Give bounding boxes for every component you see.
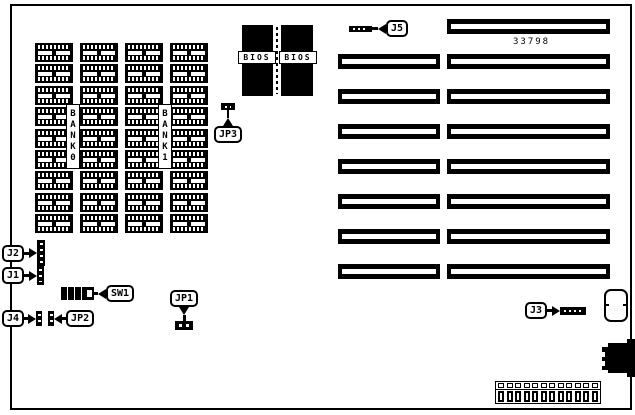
memory-socket xyxy=(170,43,208,62)
callout-jp1: JP1 xyxy=(170,290,198,330)
power-pin xyxy=(541,383,547,388)
memory-socket xyxy=(80,193,118,212)
memory-socket xyxy=(80,107,118,126)
memory-socket xyxy=(35,193,73,212)
callout-j3: J3 xyxy=(525,302,586,319)
power-pin xyxy=(515,391,521,402)
jp1-jumper xyxy=(175,321,193,330)
power-pin xyxy=(575,391,581,402)
j3-label: J3 xyxy=(525,302,547,319)
callout-jp3: JP3 xyxy=(214,103,242,143)
part-number: 33798 xyxy=(513,37,550,47)
pointer-right-icon xyxy=(28,314,36,324)
power-pin xyxy=(507,383,513,388)
pointer-right-icon xyxy=(552,306,560,316)
power-pin xyxy=(549,383,555,388)
expansion-slot xyxy=(338,264,440,279)
sw1-label: SW1 xyxy=(106,285,134,302)
bank0-label: BANK0 xyxy=(66,104,80,169)
memory-socket xyxy=(125,171,163,190)
memory-socket xyxy=(170,64,208,83)
power-pin xyxy=(498,383,504,388)
motherboard-diagram: BANK0 BANK1 BIOS BIOS 33798 J5 JP3 J2 J1 xyxy=(0,0,635,415)
jp2-label: JP2 xyxy=(66,310,94,327)
memory-socket xyxy=(80,64,118,83)
callout-j5: J5 xyxy=(349,20,408,37)
power-pin xyxy=(498,391,504,402)
jp1-label: JP1 xyxy=(170,290,198,307)
bios-chip-divider xyxy=(276,27,278,94)
memory-socket xyxy=(35,214,73,233)
memory-socket xyxy=(35,86,73,105)
power-pin xyxy=(583,391,589,402)
callout-j4-jp2: J4 JP2 xyxy=(2,310,94,327)
expansion-slot xyxy=(447,264,610,279)
memory-socket xyxy=(170,86,208,105)
keyboard-connector-body xyxy=(608,343,628,373)
pointer-left-icon xyxy=(378,24,386,34)
keyboard-connector xyxy=(602,339,635,377)
memory-socket xyxy=(80,171,118,190)
j2-connector xyxy=(37,240,45,266)
expansion-slot xyxy=(447,159,610,174)
memory-socket xyxy=(170,171,208,190)
power-pin xyxy=(592,383,598,388)
power-pin xyxy=(524,391,530,402)
memory-socket xyxy=(170,214,208,233)
power-pin xyxy=(549,391,555,402)
memory-socket xyxy=(80,43,118,62)
memory-socket xyxy=(125,214,163,233)
expansion-slot xyxy=(447,19,610,34)
expansion-slot xyxy=(338,194,440,209)
expansion-slot xyxy=(338,89,440,104)
j2-label: J2 xyxy=(2,245,24,262)
pointer-left-icon xyxy=(54,314,62,324)
keyboard-connector-pins xyxy=(602,347,608,370)
pointer-left-icon xyxy=(98,289,106,299)
memory-socket xyxy=(170,129,208,148)
din-connector-outline xyxy=(604,289,628,322)
bios-label-1: BIOS xyxy=(238,51,276,64)
j3-connector xyxy=(560,307,586,315)
j5-connector xyxy=(349,26,372,32)
memory-socket xyxy=(35,171,73,190)
memory-socket xyxy=(125,43,163,62)
memory-socket xyxy=(125,86,163,105)
bios-label-2: BIOS xyxy=(279,51,317,64)
memory-socket xyxy=(170,150,208,169)
memory-socket xyxy=(170,193,208,212)
power-pin xyxy=(515,383,521,388)
power-pin xyxy=(558,383,564,388)
power-pin xyxy=(592,391,598,402)
j4-connector xyxy=(36,311,42,326)
keyboard-connector-body xyxy=(627,339,635,377)
pointer-down-icon xyxy=(179,307,189,315)
memory-socket xyxy=(125,64,163,83)
jp3-label: JP3 xyxy=(214,126,242,143)
expansion-slot xyxy=(447,229,610,244)
pointer-up-icon xyxy=(223,118,233,126)
expansion-slot xyxy=(338,159,440,174)
power-pin xyxy=(541,391,547,402)
power-pin xyxy=(575,383,581,388)
expansion-slot xyxy=(338,229,440,244)
sw1-dip-switch xyxy=(61,287,94,300)
expansion-slot xyxy=(447,54,610,69)
memory-socket xyxy=(80,129,118,148)
expansion-slot xyxy=(447,124,610,139)
bank1-label: BANK1 xyxy=(158,104,172,169)
pointer-line xyxy=(227,110,229,118)
memory-socket xyxy=(80,86,118,105)
power-pin xyxy=(524,383,530,388)
memory-socket xyxy=(125,193,163,212)
expansion-slot xyxy=(338,54,440,69)
callout-j2: J2 xyxy=(2,240,45,266)
power-pin xyxy=(507,391,513,402)
power-pin xyxy=(583,383,589,388)
power-pin-row-top xyxy=(496,382,600,389)
callout-sw1: SW1 xyxy=(61,285,134,302)
expansion-slot xyxy=(447,194,610,209)
memory-socket xyxy=(80,150,118,169)
memory-socket-grid xyxy=(35,43,208,233)
j1-connector xyxy=(37,266,44,285)
power-pin xyxy=(532,391,538,402)
j1-label: J1 xyxy=(2,267,24,284)
expansion-slot xyxy=(338,124,440,139)
memory-socket xyxy=(170,107,208,126)
j4-label: J4 xyxy=(2,310,24,327)
power-pin xyxy=(566,383,572,388)
memory-socket xyxy=(35,64,73,83)
expansion-slot xyxy=(447,89,610,104)
power-pin-row-bottom xyxy=(496,390,600,403)
power-pin xyxy=(566,391,572,402)
j5-label: J5 xyxy=(386,20,408,37)
power-connector xyxy=(495,381,601,404)
pointer-right-icon xyxy=(29,248,37,258)
memory-socket xyxy=(35,43,73,62)
memory-socket xyxy=(80,214,118,233)
power-pin xyxy=(558,391,564,402)
jp3-jumper xyxy=(221,103,235,110)
pointer-right-icon xyxy=(29,271,37,281)
power-pin xyxy=(532,383,538,388)
callout-j1: J1 xyxy=(2,266,44,285)
